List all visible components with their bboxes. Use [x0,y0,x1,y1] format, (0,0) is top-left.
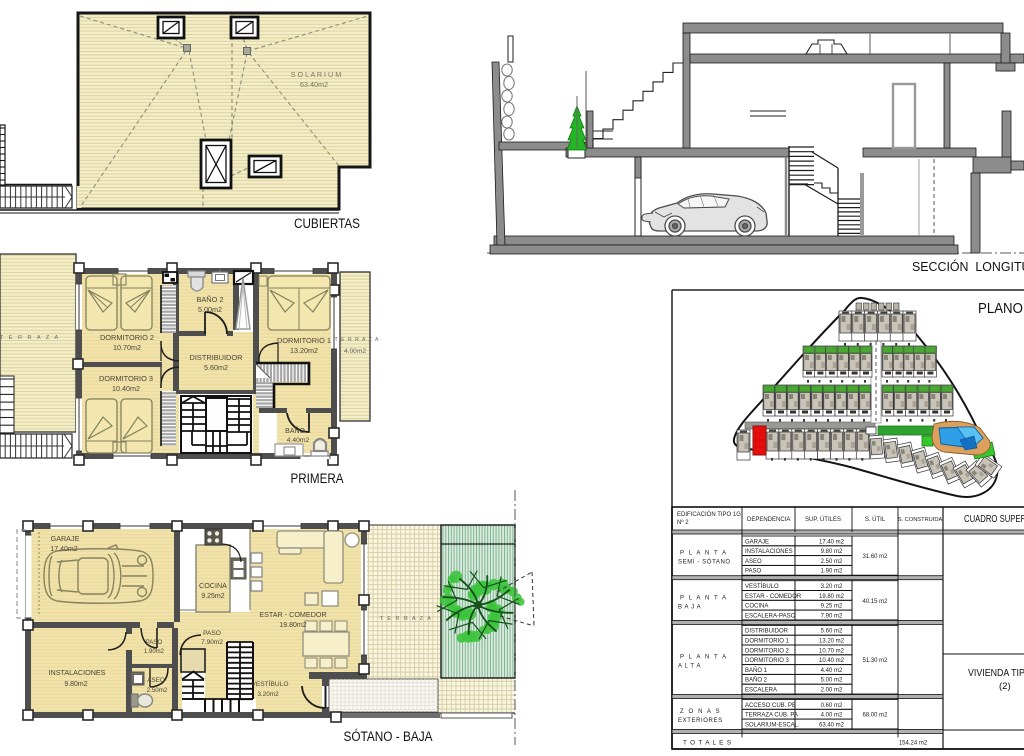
svg-text:PRIMERA: PRIMERA [291,471,344,486]
svg-text:BAÑO 2: BAÑO 2 [745,677,768,684]
svg-text:154.24 m2: 154.24 m2 [899,740,928,746]
svg-text:CUBIERTAS: CUBIERTAS [294,216,360,231]
svg-text:COCINA: COCINA [199,581,227,590]
svg-text:31.60 m2: 31.60 m2 [862,554,888,560]
svg-text:ASEO: ASEO [147,677,165,684]
svg-text:10.70 m2: 10.70 m2 [819,648,845,654]
svg-text:COCINA: COCINA [745,604,768,610]
svg-text:GARAJE: GARAJE [51,534,80,543]
svg-text:BAÑO 1: BAÑO 1 [745,667,768,674]
svg-text:DORMITORIO 3: DORMITORIO 3 [99,374,153,383]
svg-text:P L A N T A: P L A N T A [680,655,728,661]
svg-text:VIVIENDA TIPO 1G: VIVIENDA TIPO 1G [968,667,1024,679]
svg-text:51.30 m2: 51.30 m2 [862,658,888,664]
svg-text:SÓTANO - BAJA: SÓTANO - BAJA [344,729,433,744]
svg-text:VESTÍBULO: VESTÍBULO [251,679,288,688]
svg-text:10.70m2: 10.70m2 [113,343,141,352]
svg-text:SEMI - SÓTANO: SEMI - SÓTANO [678,559,731,566]
svg-text:2.50 m2: 2.50 m2 [821,559,843,565]
svg-text:ESTAR - COMEDOR: ESTAR - COMEDOR [745,594,802,600]
svg-text:40.15 m2: 40.15 m2 [862,599,888,605]
svg-text:9.80m2: 9.80m2 [64,681,87,688]
svg-text:P L A N T A: P L A N T A [680,595,728,601]
svg-text:9.25 m2: 9.25 m2 [821,604,843,610]
svg-text:PASO: PASO [203,630,221,637]
svg-text:0.60 m2: 0.60 m2 [821,703,843,709]
svg-text:VESTÍBULO: VESTÍBULO [745,583,779,590]
svg-text:T O T A L E S: T O T A L E S [683,739,732,746]
svg-text:7.90 m2: 7.90 m2 [821,613,843,619]
svg-text:4.40m2: 4.40m2 [287,437,310,444]
svg-text:DORMITORIO 1: DORMITORIO 1 [745,639,790,645]
svg-text:13.20 m2: 13.20 m2 [819,639,845,645]
svg-text:2.00 m2: 2.00 m2 [821,688,843,694]
svg-text:S O L A R I U M: S O L A R I U M [291,70,341,79]
svg-text:DORMITORIO 2: DORMITORIO 2 [745,648,790,654]
svg-text:TERRAZA CUB. PA: TERRAZA CUB. PA [745,713,798,719]
svg-text:INSTALACIONES: INSTALACIONES [49,668,106,677]
svg-text:T E R R A Z A: T E R R A Z A [0,335,60,341]
svg-text:PASO: PASO [745,569,762,575]
svg-text:PLANO GENERAL: PLANO GENERAL [978,301,1024,317]
svg-text:CUADRO SUPERFICIES: CUADRO SUPERFICIES [964,513,1024,525]
svg-text:SUP. ÚTILES: SUP. ÚTILES [805,516,841,523]
svg-text:(2): (2) [999,681,1011,692]
svg-text:B A J A: B A J A [678,604,701,610]
svg-text:5.60 m2: 5.60 m2 [821,629,843,635]
svg-text:7.90m2: 7.90m2 [201,639,223,646]
svg-text:ASEO: ASEO [745,559,762,565]
svg-text:ESTAR - COMEDOR: ESTAR - COMEDOR [259,610,326,619]
svg-text:Z O N A S: Z O N A S [680,709,721,715]
svg-text:DORMITORIO 2: DORMITORIO 2 [100,333,154,342]
svg-text:S. ÚTIL: S. ÚTIL [865,516,886,523]
svg-text:5.60m2: 5.60m2 [204,363,228,372]
svg-text:4.40 m2: 4.40 m2 [821,668,843,674]
svg-text:63.40 m2: 63.40 m2 [819,722,845,728]
svg-text:4.00m2: 4.00m2 [344,348,366,355]
svg-text:5.00 m2: 5.00 m2 [821,678,843,684]
svg-text:DISTRIBUIDOR: DISTRIBUIDOR [190,353,243,362]
svg-text:10.40m2: 10.40m2 [112,384,140,393]
svg-text:19.80 m2: 19.80 m2 [819,594,845,600]
svg-text:DORMITORIO 3: DORMITORIO 3 [745,658,790,664]
svg-text:ACCESO CUB. PB: ACCESO CUB. PB [745,703,796,709]
svg-text:3.20m2: 3.20m2 [257,691,279,698]
svg-text:EDIFICACIÓN TIPO 1G: EDIFICACIÓN TIPO 1G [677,511,741,518]
svg-text:13.20m2: 13.20m2 [290,346,318,355]
svg-text:DEPENDENCIA: DEPENDENCIA [747,517,790,523]
svg-text:9.80 m2: 9.80 m2 [821,549,843,555]
svg-text:17.40m2: 17.40m2 [50,546,77,553]
svg-text:63.40m2: 63.40m2 [300,80,328,89]
svg-text:1.90m2: 1.90m2 [144,649,165,655]
svg-text:Nº 2: Nº 2 [677,519,689,526]
svg-text:T E R R A Z A: T E R R A Z A [380,616,433,622]
svg-text:EXTERIORES: EXTERIORES [678,718,723,724]
svg-text:17.40 m2: 17.40 m2 [819,539,845,545]
svg-text:PASO: PASO [146,639,163,646]
svg-text:9.25m2: 9.25m2 [201,593,224,600]
svg-text:4.00 m2: 4.00 m2 [821,713,843,719]
svg-text:GARAJE: GARAJE [745,539,769,545]
svg-text:2.50m2: 2.50m2 [147,687,168,694]
svg-text:68.00 m2: 68.00 m2 [862,713,888,719]
svg-text:1.90 m2: 1.90 m2 [821,569,843,575]
svg-text:INSTALACIONES: INSTALACIONES [745,549,793,555]
svg-text:3.20 m2: 3.20 m2 [821,584,843,590]
svg-text:A L T A: A L T A [678,664,701,670]
svg-text:P L A N T A: P L A N T A [680,551,728,557]
svg-text:ESCALERA: ESCALERA [745,688,777,694]
svg-text:ESCALERA-PASO: ESCALERA-PASO [745,613,796,619]
svg-text:SOLARIUM-ESCAL.: SOLARIUM-ESCAL. [745,722,800,728]
svg-text:19.80m2: 19.80m2 [279,622,306,629]
svg-text:BAÑO 1: BAÑO 1 [285,426,311,435]
svg-text:10.40 m2: 10.40 m2 [819,658,845,664]
svg-text:DORMITORIO 1: DORMITORIO 1 [277,336,331,345]
svg-text:DISTRIBUIDOR: DISTRIBUIDOR [745,629,789,635]
svg-text:T E R R A Z A: T E R R A Z A [335,337,380,343]
svg-text:S. CONSTRUIDA: S. CONSTRUIDA [898,517,943,523]
svg-text:SECCIÓN LONGITUDINAL: SECCIÓN LONGITUDINAL [912,259,1024,274]
svg-text:5.00m2: 5.00m2 [198,305,222,314]
svg-text:BAÑO 2: BAÑO 2 [196,295,223,304]
